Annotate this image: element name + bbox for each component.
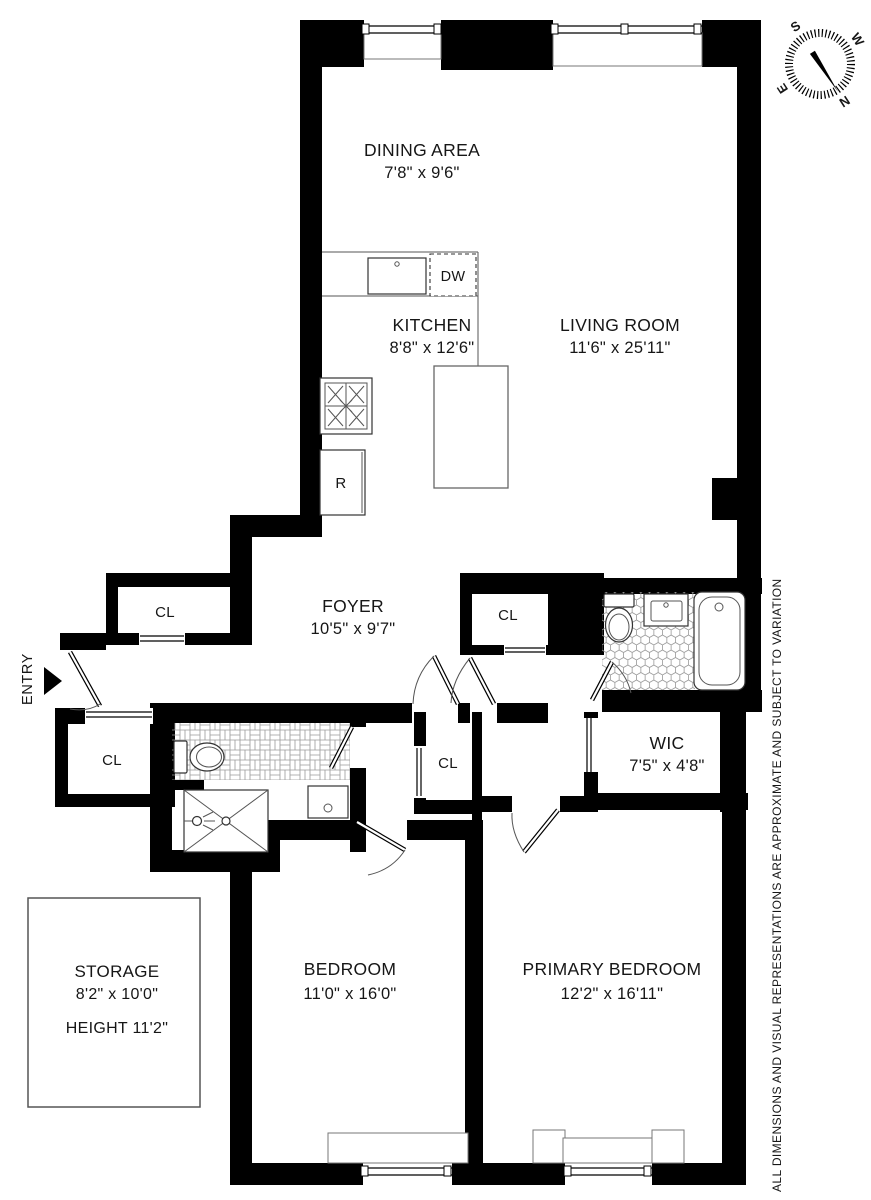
shower-icon [184, 790, 268, 852]
wall-segment [737, 20, 761, 487]
window-dining [362, 24, 441, 59]
wall-segment [184, 633, 252, 645]
toilet-icon [604, 594, 634, 642]
wall-segment [458, 703, 470, 723]
kitchen-island [434, 366, 508, 488]
wall-segment [460, 573, 552, 594]
primary-name: PRIMARY BEDROOM [523, 959, 702, 979]
storage-name: STORAGE [75, 962, 160, 981]
cl-foyer-label: CL [155, 604, 175, 621]
wall-segment [482, 796, 512, 812]
compass-icon: S W N E [774, 18, 868, 111]
toilet-icon [174, 741, 224, 773]
wall-segment [300, 20, 322, 515]
compass-south: S [788, 18, 804, 35]
storage-unit: STORAGE 8'2" x 10'0" HEIGHT 11'2" [28, 898, 200, 1107]
wall-segment [452, 1163, 565, 1185]
wall-segment [465, 820, 483, 1165]
kitchen-fixtures [320, 252, 508, 515]
wall-segment [407, 820, 467, 840]
wall-segment [722, 812, 746, 1165]
disclaimer-note: ALL DIMENSIONS AND VISUAL REPRESENTATION… [770, 578, 784, 1192]
kitchen-sink-icon [368, 258, 426, 294]
primary-dims: 12'2" x 16'11" [561, 985, 664, 1003]
living-name: LIVING ROOM [560, 315, 680, 335]
entry-closet-opening [85, 708, 153, 724]
wall-segment [460, 645, 505, 655]
wall-segment [602, 690, 762, 712]
entry-door [70, 652, 100, 710]
wall-segment [150, 708, 172, 863]
wall-segment [584, 793, 748, 810]
wall-segment [560, 796, 584, 812]
hall-closet-opening [413, 746, 427, 798]
foyer-dims: 10'5" x 9'7" [311, 620, 396, 638]
wall-segment [590, 594, 602, 655]
cl-foyer-east-label: CL [498, 607, 518, 624]
wall-segment [378, 703, 412, 723]
wic-name: WIC [650, 733, 685, 753]
dining-name: DINING AREA [364, 140, 480, 160]
foyer-door-right [451, 658, 494, 704]
bedroom-name: BEDROOM [304, 959, 397, 979]
stove-icon [320, 378, 372, 434]
compass-west: W [848, 30, 868, 49]
wall-segment [441, 20, 553, 70]
wall-segment [350, 703, 366, 727]
foyer-closet-opening [139, 633, 185, 645]
kitchen-name: KITCHEN [393, 315, 472, 335]
cl-entry-label: CL [102, 752, 122, 769]
wall-segment [460, 573, 472, 653]
bedroom-dims: 11'0" x 16'0" [303, 985, 396, 1003]
vanity-sink-icon [644, 594, 688, 626]
wall-segment [60, 633, 106, 650]
wic-opening [583, 718, 599, 772]
foyer-east-closet-opening [504, 645, 546, 655]
wall-segment [106, 573, 252, 587]
storage-height: HEIGHT 11'2" [66, 1020, 168, 1037]
entry-label: ENTRY [20, 653, 36, 705]
entry-annotation: ENTRY [20, 653, 62, 705]
wall-segment [150, 703, 380, 723]
wall-segment [172, 780, 204, 790]
dining-dims: 7'8" x 9'6" [384, 164, 459, 182]
floor-plan-page: STORAGE 8'2" x 10'0" HEIGHT 11'2" DINING… [0, 0, 871, 1200]
compass-east: E [774, 81, 791, 97]
storage-dims: 8'2" x 10'0" [76, 986, 158, 1003]
window-living [551, 24, 702, 66]
wall-segment [106, 633, 140, 645]
sink-icon [308, 786, 348, 818]
primary-door [512, 810, 558, 852]
primary-bath [592, 592, 745, 700]
compass-north: N [836, 93, 852, 111]
living-dims: 11'6" x 25'11" [569, 339, 670, 357]
foyer-name: FOYER [322, 596, 384, 616]
entry-arrow-icon [44, 667, 62, 695]
wall-segment [262, 820, 357, 840]
wall-segment [652, 1163, 746, 1185]
wall-segment [497, 703, 548, 723]
wall-segment [584, 712, 598, 718]
wall-segment [712, 478, 761, 520]
wall-segment [55, 708, 86, 724]
dishwasher-label: DW [441, 269, 466, 285]
floor-plan-canvas: STORAGE 8'2" x 10'0" HEIGHT 11'2" DINING… [0, 0, 871, 1200]
wall-segment [414, 800, 482, 814]
bathtub-icon [694, 592, 745, 690]
wic-dims: 7'5" x 4'8" [629, 757, 704, 775]
kitchen-dims: 8'8" x 12'6" [390, 339, 475, 357]
cl-hall-label: CL [438, 755, 458, 772]
refrigerator-label: R [335, 475, 346, 492]
wall-segment [230, 845, 252, 1185]
